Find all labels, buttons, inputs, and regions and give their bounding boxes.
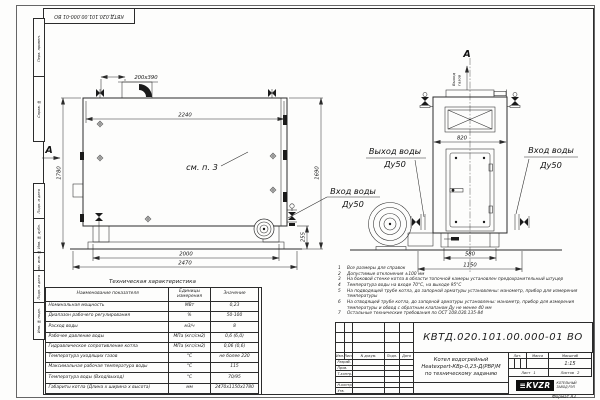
col-list: Лист — [345, 353, 353, 360]
tech-row-units: % — [169, 312, 211, 322]
kvzr-logo: ≡KVZR — [516, 380, 554, 391]
mass-value — [527, 359, 549, 369]
tech-row-value: 70/95 — [211, 373, 259, 383]
format-note: Формат А3 — [528, 394, 600, 399]
product-name-cell: Котел водогрейный Heatexpert-КВр-0,23-Д(… — [414, 353, 509, 383]
tech-row-value: 115 — [211, 363, 259, 373]
company-name: КОТЕЛЬНЫЙ ЗАВОД РЭП — [557, 382, 577, 390]
col-data: Дата — [400, 353, 414, 360]
note-item: 7Остальные технические требования по ОСТ… — [338, 311, 592, 317]
role-utv: Утв. — [336, 388, 353, 394]
col-podp: Подп. — [385, 353, 400, 360]
tech-row-value: 50-100 — [211, 312, 259, 322]
col-izm: Изм. — [336, 353, 345, 360]
tech-row-units: °С — [169, 353, 211, 363]
tech-row-units: °С — [169, 373, 211, 383]
tech-row-name: Температура уходящих газов — [46, 353, 169, 363]
empty-cell — [414, 383, 509, 394]
title-block: Изм. Лист N докум. Подп. Дата Разраб. Пр… — [335, 322, 594, 395]
margin-stamp-perv-primen: Перв. примен. — [33, 18, 45, 78]
tech-row-units: м3/ч — [169, 322, 211, 332]
drawing-sheet: КВТД.020.101.00.000-01 ВО Перв. примен. … — [0, 0, 600, 400]
sheet-count-row: Лист1 Листов2 — [509, 369, 593, 377]
margin-stamp-vzam-inv: Взам. инв. № — [33, 252, 45, 272]
scale-value: 1:15 — [549, 359, 592, 369]
tech-table-title: Техническая характеристика — [45, 279, 260, 285]
tech-row-value: не более 220 — [211, 353, 259, 363]
title-block-left-grid: Изм. Лист N докум. Подп. Дата Разраб. Пр… — [336, 323, 414, 394]
doc-number-cell: КВТД.020.101.00.000-01 ВО — [414, 323, 593, 353]
lit-mass-scale-grid: Лит. Масса Масштаб 1:15 — [509, 353, 593, 369]
tech-row-name: Габариты котла (Длина х ширина х высота) — [46, 384, 169, 394]
logo-stripes-icon: ≡ — [519, 381, 526, 390]
tech-row-name: Диапазон рабочего регулирования — [46, 312, 169, 322]
margin-stamp-inv-dubl: Инв. № дубл. — [33, 218, 45, 254]
top-doc-number: КВТД.020.101.00.000-01 ВО — [54, 14, 123, 19]
note-item: 6На отводящей трубе котла, до запорной а… — [338, 300, 592, 311]
margin-stamp-podp-data-2: Подп. и дата — [33, 270, 45, 304]
top-doc-number-stamp: КВТД.020.101.00.000-01 ВО — [43, 8, 135, 24]
company-logo-cell: ≡KVZR КОТЕЛЬНЫЙ ЗАВОД РЭП — [509, 377, 593, 394]
note-item: 5На подводящей трубе котла, до запорной … — [338, 289, 592, 300]
tech-row-value: 2470х1150х1780 — [211, 384, 259, 394]
margin-stamp-inv-podl: Инв. № подл. — [33, 302, 45, 340]
tech-row-units: МПа (кгс/см2) — [169, 333, 211, 343]
tech-row-units: °С — [169, 363, 211, 373]
tech-row-units: МПа (кгс/см2) — [169, 343, 211, 353]
tech-row-value: 8 — [211, 322, 259, 332]
tech-row-name: Рабочее давление воды — [46, 333, 169, 343]
tech-header-name: Наименование показателя — [46, 288, 169, 302]
tech-row-units: мм — [169, 384, 211, 394]
tech-row-name: Максимальная рабочая температура воды — [46, 363, 169, 373]
tech-row-name: Номинальная мощность — [46, 302, 169, 312]
tech-row-name: Расход воды — [46, 322, 169, 332]
tech-header-units: Единицы измерения — [169, 288, 211, 302]
tech-table: Наименование показателя Единицы измерени… — [45, 287, 262, 395]
margin-stamp-podp-data-1: Подп. и дата — [33, 183, 45, 220]
tech-row-value: 0,23 — [211, 302, 259, 312]
tech-header-value: Значение — [211, 288, 259, 302]
tech-row-name: Температура воды (Вход/выход) — [46, 373, 169, 383]
technical-notes: 1Все размеры для справок 2Допустимые отк… — [338, 266, 592, 317]
margin-stamp-sprav: Справ. № — [33, 76, 45, 142]
tech-row-name: Гидравлическое сопротивление котла — [46, 343, 169, 353]
tech-row-units: МВт — [169, 302, 211, 312]
col-doc: N докум. — [353, 353, 385, 360]
lit-sub-cells — [509, 359, 526, 368]
tech-row-value: 0,6 (6,0) — [211, 333, 259, 343]
tech-row-value: 0,06 (0,6) — [211, 343, 259, 353]
